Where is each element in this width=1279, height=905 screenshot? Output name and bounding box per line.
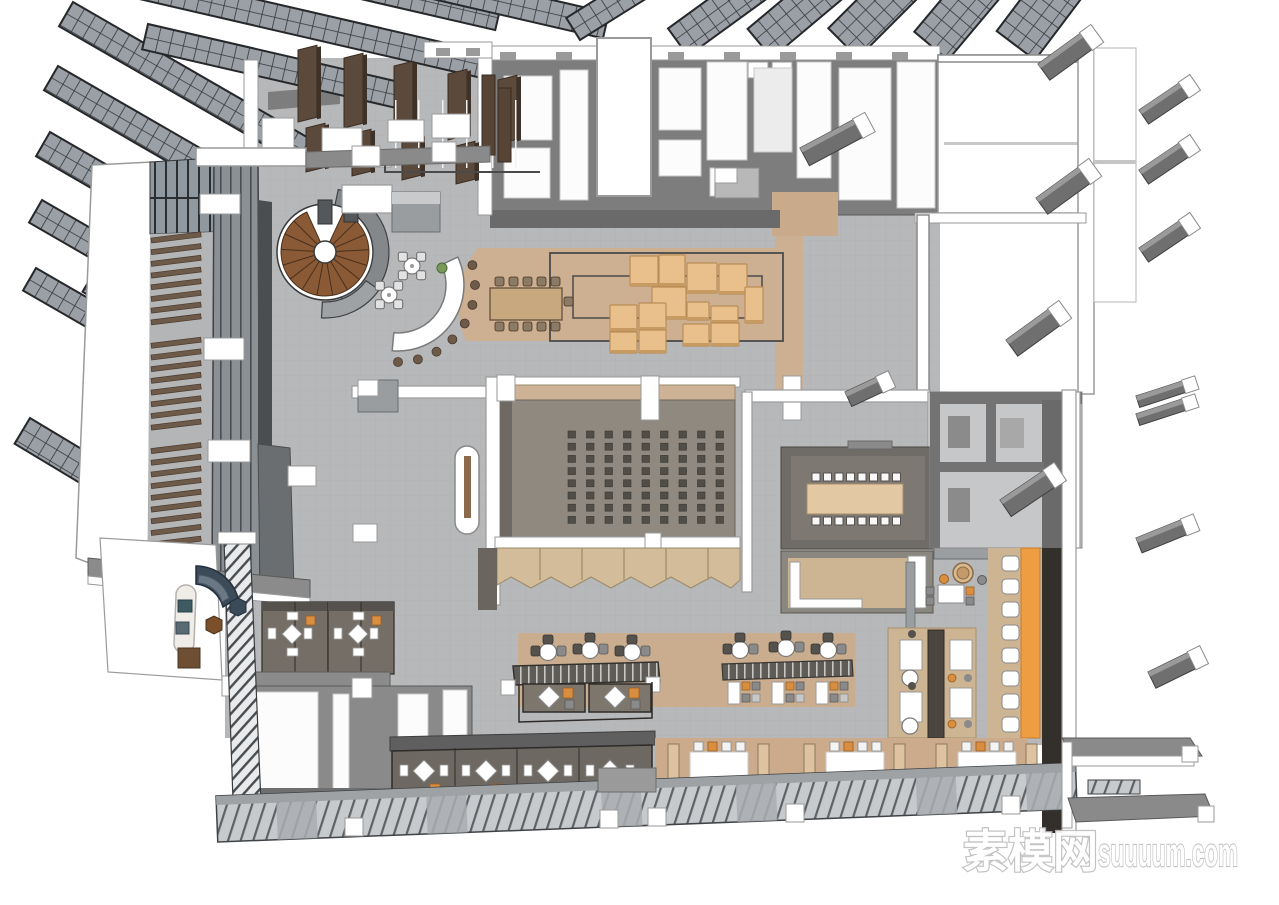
svg-text:suuuum.com: suuuum.com (1098, 831, 1238, 875)
svg-text:素模网: 素模网 (963, 826, 1098, 877)
